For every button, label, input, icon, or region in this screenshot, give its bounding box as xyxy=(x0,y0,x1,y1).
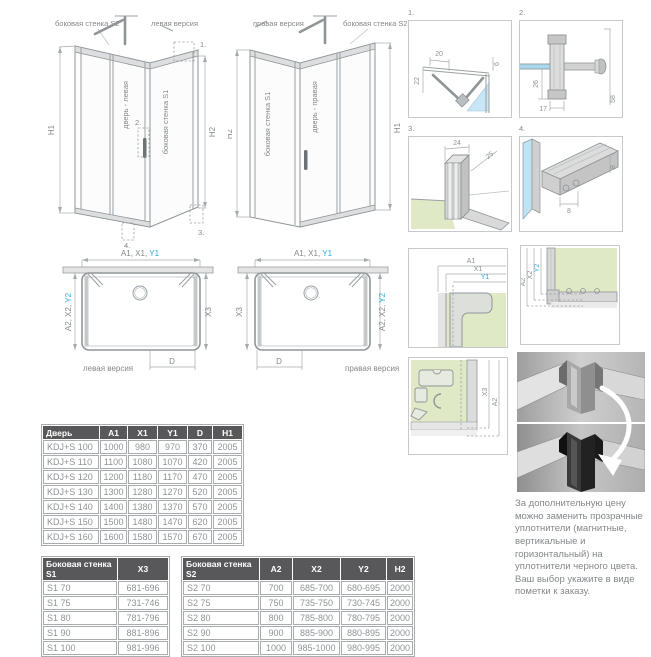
table-cell: 2000 xyxy=(387,626,413,640)
table-cell: 1480 xyxy=(128,515,157,529)
table-cell: S1 70 xyxy=(43,581,117,595)
table-cell: 1370 xyxy=(158,500,187,514)
dim-a1-x1-y1: A1, X1, Y1 xyxy=(294,249,333,258)
table-cell: 885-900 xyxy=(293,626,340,640)
table-cell: 1170 xyxy=(158,470,187,484)
table-row: S2 1001000985-1000980-9952000 xyxy=(183,641,413,655)
side-wall-s1-table: Боковая стенка S1X3S1 70681-696S1 75731-… xyxy=(41,556,170,657)
detail-box-4: 8 8 xyxy=(519,136,623,232)
table-cell: 1000 xyxy=(260,641,292,655)
table-row: S1 75731-746 xyxy=(43,596,168,610)
table-cell: 780-795 xyxy=(341,611,386,625)
table-row: S2 75750735-750730-7452000 xyxy=(183,596,413,610)
door-handle xyxy=(143,138,147,158)
dim-label: A2 xyxy=(521,278,527,287)
table-row: S2 90900885-900880-8952000 xyxy=(183,626,413,640)
column-header: Y1 xyxy=(158,426,187,439)
callout-1: 1. xyxy=(200,40,206,49)
table-cell: 1000 xyxy=(100,440,127,454)
label-door-right: дверь - правая xyxy=(310,81,319,133)
column-header: H2 xyxy=(387,558,413,580)
table-cell: 1570 xyxy=(158,530,187,544)
table-cell: 985-1000 xyxy=(293,641,340,655)
table-cell: S1 75 xyxy=(43,596,117,610)
dim-label: A2 xyxy=(492,398,499,407)
table-row: KDJ+S 10010009809703702005 xyxy=(43,440,242,454)
table-cell: KDJ+S 110 xyxy=(43,455,99,469)
detail-box-x3-a2: X3 A2 xyxy=(408,357,508,455)
label-right-version: правая версия xyxy=(253,19,304,28)
dim-x3: X3 xyxy=(204,307,213,317)
detail-box-a1-x1-y1: A1 X1 Y1 xyxy=(408,248,508,348)
table-cell: S1 90 xyxy=(43,626,117,640)
dim-h1: H1 xyxy=(47,124,56,135)
table-cell: 750 xyxy=(260,596,292,610)
column-header: X2 xyxy=(293,558,340,580)
table-cell: 2005 xyxy=(213,440,242,454)
table-cell: 420 xyxy=(188,455,212,469)
table-cell: 700 xyxy=(260,581,292,595)
table-row: S1 70681-696 xyxy=(43,581,168,595)
table-cell: 2005 xyxy=(213,470,242,484)
table-cell: S2 90 xyxy=(183,626,259,640)
dim-label: Y2 xyxy=(534,264,541,273)
table-cell: 2005 xyxy=(213,500,242,514)
column-header: X1 xyxy=(128,426,157,439)
label-door-left: дверь - левая xyxy=(121,81,130,129)
detail-number-2: 2. xyxy=(519,8,525,17)
callout-3: 3. xyxy=(198,228,204,237)
side-wall-panel xyxy=(150,50,198,227)
table-cell: 980 xyxy=(128,440,157,454)
replacement-note-text: За дополнительную цену можно заменить пр… xyxy=(515,498,647,599)
table-cell: 1280 xyxy=(128,485,157,499)
dim-label: 58 xyxy=(610,95,617,103)
table-row: S1 80781-796 xyxy=(43,611,168,625)
table-cell: 980-995 xyxy=(341,641,386,655)
table-row: KDJ+S 1401400138013705702005 xyxy=(43,500,242,514)
dim-h2: H2 xyxy=(208,126,217,137)
table-cell: 781-796 xyxy=(118,611,168,625)
side-wall-s2-table: Боковая стенка S2A2X2Y2H2S2 70700685-700… xyxy=(181,556,415,657)
table-cell: 1600 xyxy=(100,530,127,544)
table-cell: KDJ+S 160 xyxy=(43,530,99,544)
table-cell: 520 xyxy=(188,485,212,499)
table-cell: 1300 xyxy=(100,485,127,499)
table-row: S2 80800785-800780-7952000 xyxy=(183,611,413,625)
dim-label: X3 xyxy=(482,388,489,397)
dim-h2: H2 xyxy=(228,128,234,139)
table-cell: 1380 xyxy=(128,500,157,514)
header-row: Боковая стенка S2A2X2Y2H2 xyxy=(183,558,413,580)
table-cell: 2000 xyxy=(387,581,413,595)
dim-d: D xyxy=(169,357,175,366)
table-cell: 470 xyxy=(188,470,212,484)
table-row: S1 90881-896 xyxy=(43,626,168,640)
dim-label: 8 xyxy=(567,208,571,215)
dim-label: Y1 xyxy=(481,274,490,281)
side-wall-panel xyxy=(250,50,300,227)
plan-view-left-version: A1, X1, Y1 A2, X2, Y2 X3 D левая версия xyxy=(40,242,225,379)
callout-2: 2. xyxy=(135,118,141,127)
detail-number-1: 1. xyxy=(408,8,414,17)
table-cell: 731-746 xyxy=(118,596,168,610)
table-cell: 2005 xyxy=(213,530,242,544)
dim-label: 17 xyxy=(539,106,547,113)
detail-box-a2-x2-y2: Y2 X2 A2 xyxy=(520,245,620,345)
dim-label: A1 xyxy=(467,258,476,265)
detail-box-1: 20 22 6 xyxy=(408,20,512,118)
column-header: D xyxy=(188,426,212,439)
table-cell: 981-996 xyxy=(118,641,168,655)
label-wall-s1: боковая стенка S1 xyxy=(263,92,272,157)
spec-sheet-page: { "colors": { "accent_blue": "#29a9e0", … xyxy=(0,0,651,655)
dim-label: X1 xyxy=(474,266,483,273)
table-cell: KDJ+S 140 xyxy=(43,500,99,514)
dim-label: 22 xyxy=(414,77,421,85)
dim-label: 24 xyxy=(453,140,461,147)
column-header: Боковая стенка S1 xyxy=(43,558,117,580)
dim-label: X2 xyxy=(527,271,534,280)
table-row: S1 100981-996 xyxy=(43,641,168,655)
dim-x3: X3 xyxy=(235,307,244,317)
door-dimensions-table: ДверьA1X1Y1DH1KDJ+S 10010009809703702005… xyxy=(41,424,244,546)
table-cell: 1180 xyxy=(128,470,157,484)
iso-diagram-right-version: правая версия боковая стенка S2 боковая … xyxy=(228,12,408,249)
table-cell: 1080 xyxy=(128,455,157,469)
iso-diagram-left-version: боковая стенка S2 левая версия дверь - л… xyxy=(35,12,230,249)
table-cell: S1 80 xyxy=(43,611,117,625)
table-cell: S1 100 xyxy=(43,641,117,655)
table-cell: 1100 xyxy=(100,455,127,469)
header-row: Боковая стенка S1X3 xyxy=(43,558,168,580)
table-cell: 1270 xyxy=(158,485,187,499)
caption-right-version: правая версия xyxy=(345,364,399,373)
column-header: Дверь xyxy=(43,426,99,439)
table-cell: S2 75 xyxy=(183,596,259,610)
table-cell: 2005 xyxy=(213,455,242,469)
table-cell: KDJ+S 130 xyxy=(43,485,99,499)
table-row: KDJ+S 1101100108010704202005 xyxy=(43,455,242,469)
table-cell: 2005 xyxy=(213,515,242,529)
table-cell: 1070 xyxy=(158,455,187,469)
table-cell: 680-695 xyxy=(341,581,386,595)
table-cell: 1400 xyxy=(100,500,127,514)
table-cell: 370 xyxy=(188,440,212,454)
table-row: KDJ+S 1601600158015706702005 xyxy=(43,530,242,544)
table-cell: 2000 xyxy=(387,641,413,655)
table-cell: 1470 xyxy=(158,515,187,529)
table-cell: 1580 xyxy=(128,530,157,544)
table-cell: 2005 xyxy=(213,485,242,499)
table-cell: KDJ+S 100 xyxy=(43,440,99,454)
table-cell: 2000 xyxy=(387,611,413,625)
table-row: KDJ+S 1301300128012705202005 xyxy=(43,485,242,499)
table-cell: S2 80 xyxy=(183,611,259,625)
table-cell: 730-745 xyxy=(341,596,386,610)
table-cell: 785-800 xyxy=(293,611,340,625)
column-header: Боковая стенка S2 xyxy=(183,558,259,580)
table-cell: KDJ+S 120 xyxy=(43,470,99,484)
dim-a2-x2-y2: A2, X2, Y2 xyxy=(64,292,73,331)
door-handle xyxy=(304,150,308,170)
table-cell: 670 xyxy=(188,530,212,544)
dim-a2-x2-y2: A2, X2, Y2 xyxy=(378,292,387,331)
dim-label: 20 xyxy=(435,51,443,58)
caption-left-version: левая версия xyxy=(83,364,133,373)
dim-label: 6 xyxy=(494,62,501,66)
dim-label: 26 xyxy=(533,80,540,88)
detail-number-4: 4. xyxy=(519,124,525,133)
table-cell: 620 xyxy=(188,515,212,529)
table-cell: 881-896 xyxy=(118,626,168,640)
table-cell: 900 xyxy=(260,626,292,640)
column-header: A1 xyxy=(100,426,127,439)
detail-number-3: 3. xyxy=(408,124,414,133)
dim-label: 8 xyxy=(610,165,617,169)
dim-d: D xyxy=(276,357,282,366)
table-cell: 570 xyxy=(188,500,212,514)
table-cell: 970 xyxy=(158,440,187,454)
table-cell: S2 100 xyxy=(183,641,259,655)
dim-h1: H1 xyxy=(393,122,402,133)
table-cell: 681-696 xyxy=(118,581,168,595)
table-cell: S2 70 xyxy=(183,581,259,595)
detail-box-2: 26 17 58 xyxy=(519,20,623,118)
table-cell: 2000 xyxy=(387,596,413,610)
label-left-version: левая версия xyxy=(151,19,198,28)
column-header: A2 xyxy=(260,558,292,580)
label-wall-s2: боковая стенка S2 xyxy=(343,19,408,28)
table-row: S2 70700685-700680-6952000 xyxy=(183,581,413,595)
table-cell: 880-895 xyxy=(341,626,386,640)
detail-box-3: 24 25 xyxy=(408,136,512,232)
swap-arrow-icon xyxy=(588,384,646,482)
plan-view-right-version: A1, X1, Y1 X3 A2, X2, Y2 D правая версия xyxy=(228,242,413,382)
table-cell: 735-750 xyxy=(293,596,340,610)
table-cell: KDJ+S 150 xyxy=(43,515,99,529)
column-header: X3 xyxy=(118,558,168,580)
label-wall-s1: боковая стенка S1 xyxy=(161,90,170,155)
table-cell: 1200 xyxy=(100,470,127,484)
table-cell: 685-700 xyxy=(293,581,340,595)
table-row: KDJ+S 1201200118011704702005 xyxy=(43,470,242,484)
table-cell: 1500 xyxy=(100,515,127,529)
dim-a1-x1-y1: A1, X1, Y1 xyxy=(121,249,160,258)
column-header: H1 xyxy=(213,426,242,439)
header-row: ДверьA1X1Y1DH1 xyxy=(43,426,242,439)
table-cell: 800 xyxy=(260,611,292,625)
column-header: Y2 xyxy=(341,558,386,580)
table-row: KDJ+S 1501500148014706202005 xyxy=(43,515,242,529)
